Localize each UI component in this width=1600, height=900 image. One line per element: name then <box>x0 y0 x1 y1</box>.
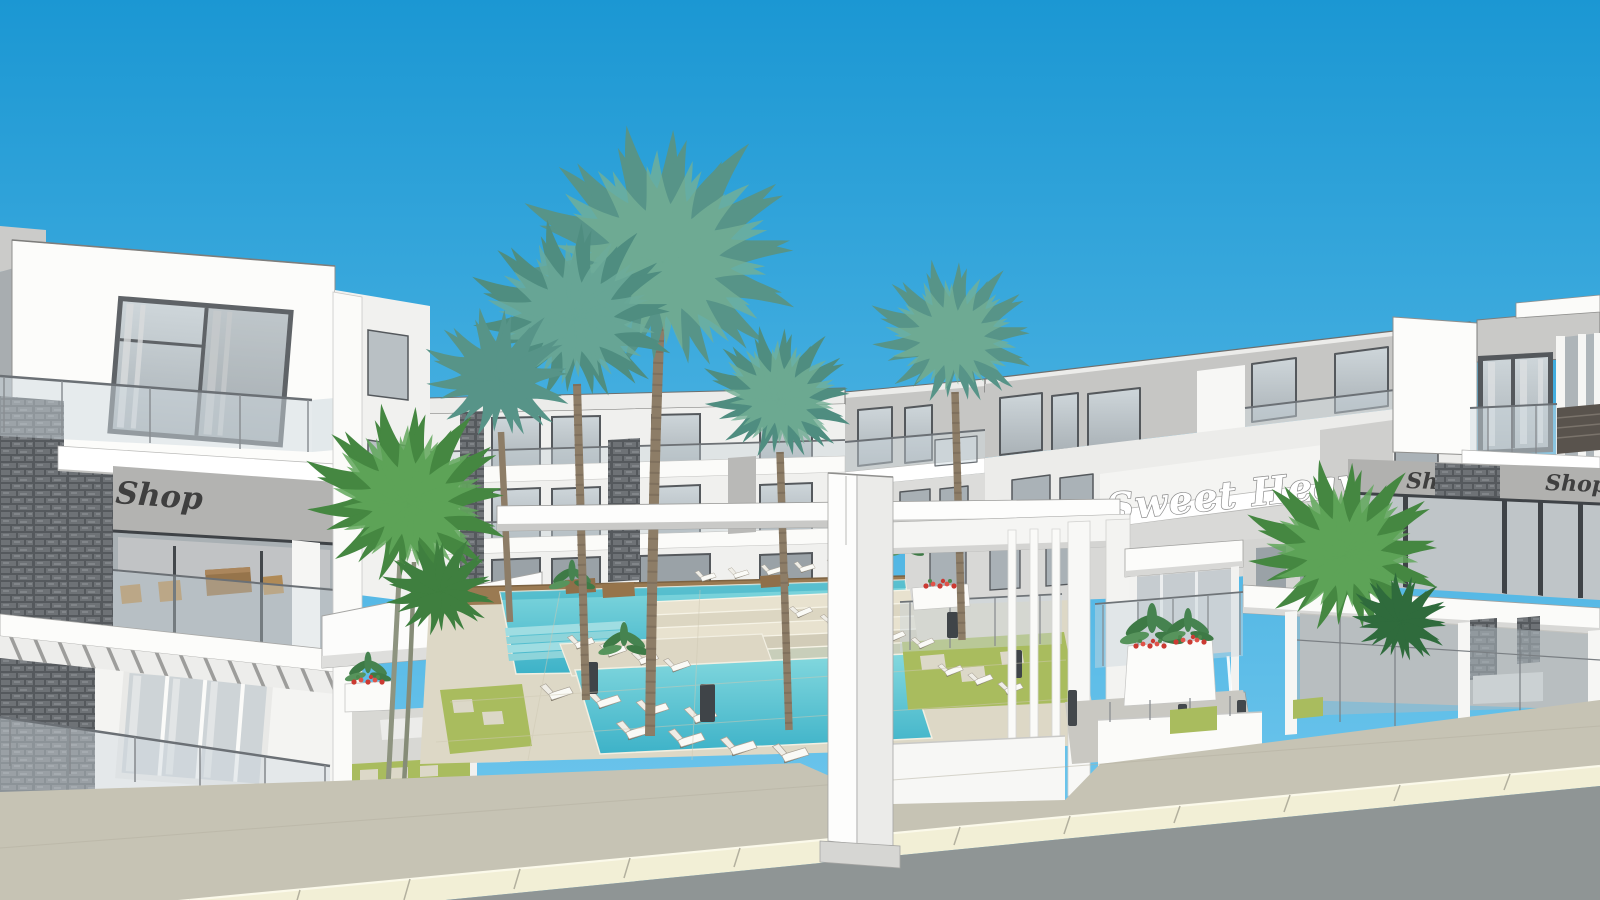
shop-sign-right-b: Shop <box>1545 470 1600 498</box>
left-villa-building: Shop <box>0 226 350 830</box>
portal-pillar <box>820 473 900 868</box>
entry-planter <box>1124 639 1216 706</box>
resort-render: Sweet Heaven <box>0 0 1600 900</box>
shop-sign-left: Shop <box>114 475 204 517</box>
